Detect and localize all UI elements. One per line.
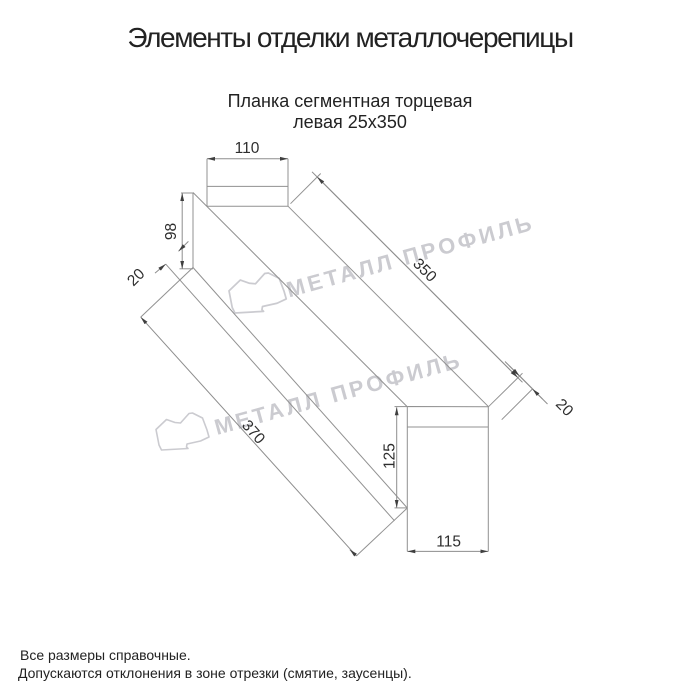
svg-text:98: 98	[163, 223, 180, 240]
svg-text:115: 115	[436, 534, 461, 551]
svg-text:125: 125	[382, 443, 399, 469]
svg-text:МЕТАЛЛ ПРОФИЛЬ: МЕТАЛЛ ПРОФИЛЬ	[284, 210, 538, 303]
svg-text:110: 110	[235, 140, 260, 157]
svg-text:20: 20	[124, 265, 148, 289]
svg-text:20: 20	[552, 396, 576, 420]
